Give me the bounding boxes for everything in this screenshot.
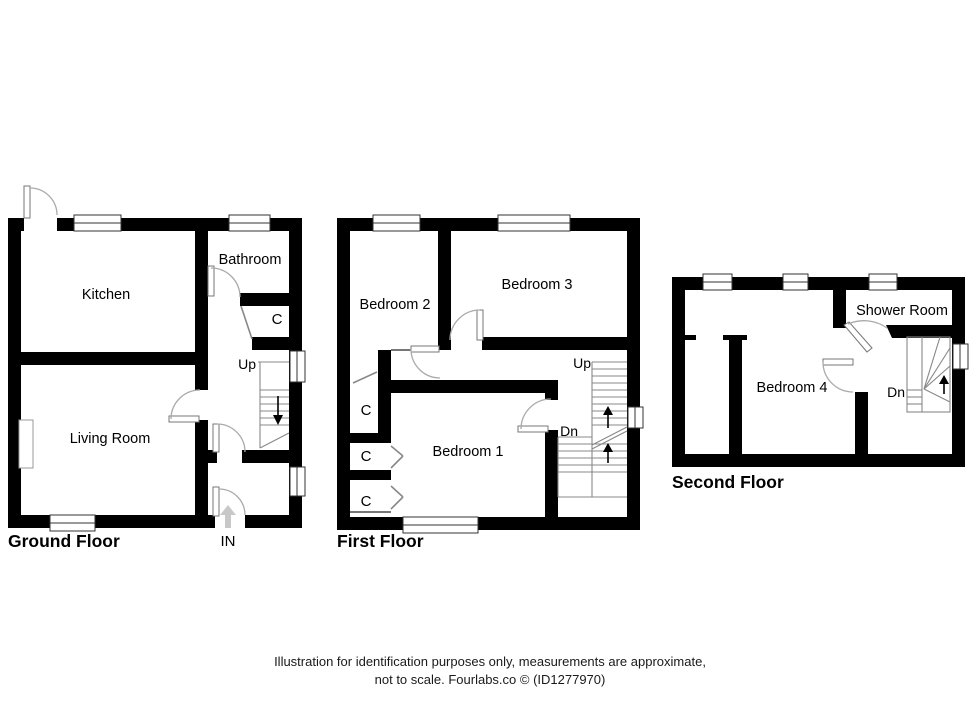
- wall-segment: [242, 450, 302, 463]
- first-floor-windows: [373, 215, 643, 533]
- wall-segment: [337, 433, 391, 443]
- window: [290, 351, 305, 382]
- ground-floor-stairs: [258, 362, 289, 448]
- wall-segment: [672, 454, 965, 467]
- bedroom2-door: [411, 346, 440, 378]
- arrow-up-icon: [220, 505, 236, 528]
- ground-floor-doors: [24, 186, 252, 516]
- room-label-kitchen: Kitchen: [82, 287, 130, 303]
- room-label-bedroom4: Bedroom 4: [757, 380, 828, 396]
- window: [50, 515, 95, 531]
- closet-door: [241, 306, 252, 339]
- window: [290, 467, 305, 496]
- wall-segment: [478, 517, 640, 530]
- closet3-door: [391, 486, 403, 509]
- room-label-bathroom: Bathroom: [219, 252, 282, 268]
- floor-title-second: Second Floor: [672, 472, 784, 492]
- first-floor-plan: Bedroom 2 Bedroom 3 Bedroom 1 C C C Up D…: [337, 215, 643, 551]
- window: [703, 274, 732, 290]
- wall-segment: [391, 380, 558, 393]
- wall-segment: [195, 463, 208, 515]
- window: [373, 215, 420, 231]
- disclaimer-line-2: not to scale. Fourlabs.co © (ID1277970): [375, 672, 606, 687]
- wall-segment: [833, 290, 846, 328]
- wall-segment: [8, 218, 21, 528]
- wall-segment: [337, 218, 350, 530]
- window: [498, 215, 570, 231]
- wall-segment: [195, 231, 208, 352]
- bedroom3-door: [450, 310, 483, 340]
- wall-segment: [545, 430, 558, 517]
- wall-segment: [245, 515, 302, 528]
- wall-segment: [8, 515, 50, 528]
- room-label-closet2: C: [361, 448, 372, 465]
- wall-segment: [723, 335, 747, 340]
- entrance-arrow: [220, 505, 236, 528]
- wall-segment: [952, 277, 965, 467]
- wall-segment: [121, 218, 229, 231]
- entry-door: [24, 186, 57, 218]
- wall-segment: [438, 231, 451, 350]
- wall-segment: [337, 470, 391, 480]
- wall-segment: [685, 335, 696, 340]
- entrance-label-in: IN: [221, 533, 236, 550]
- ground-floor-plan: Kitchen Bathroom C Up Living Room IN Gro…: [8, 186, 305, 551]
- wall-segment: [886, 325, 965, 338]
- room-label-shower-room: Shower Room: [856, 303, 948, 319]
- closet2-door: [391, 446, 403, 468]
- arrow-down-icon: [273, 415, 283, 425]
- wall-segment: [337, 517, 403, 530]
- chimney-breast: [19, 420, 33, 468]
- wall-segment: [95, 515, 215, 528]
- hall-door: [213, 424, 245, 452]
- floor-title-ground: Ground Floor: [8, 531, 120, 551]
- living-room-door: [169, 390, 200, 422]
- room-label-bedroom1: Bedroom 1: [433, 444, 504, 460]
- room-label-closet: C: [272, 311, 283, 328]
- window: [783, 274, 808, 290]
- floorplan-page: Kitchen Bathroom C Up Living Room IN Gro…: [0, 0, 980, 708]
- wall-segment: [378, 350, 391, 443]
- wall-segment: [240, 293, 302, 306]
- room-label-bedroom3: Bedroom 3: [502, 277, 573, 293]
- second-floor-doors: [823, 321, 887, 392]
- window: [953, 344, 968, 369]
- wall-segment: [420, 218, 498, 231]
- floor-title-first: First Floor: [337, 531, 424, 551]
- wall-segment: [482, 337, 627, 350]
- shower-room-door: [844, 321, 887, 352]
- wall-segment: [627, 218, 640, 530]
- wall-segment: [252, 337, 302, 350]
- room-label-closet3: C: [361, 493, 372, 510]
- wall-segment: [8, 352, 208, 365]
- wall-segment: [808, 277, 869, 290]
- bedroom4-door: [823, 359, 853, 392]
- stair-label-down: Dn: [560, 423, 578, 439]
- stair-label-down: Dn: [887, 384, 905, 400]
- window: [74, 215, 121, 231]
- wall-segment: [195, 365, 208, 390]
- wall-segment: [729, 337, 742, 454]
- disclaimer-line-1: Illustration for identification purposes…: [274, 654, 706, 669]
- wall-segment: [672, 277, 685, 467]
- stair-label-up: Up: [573, 355, 591, 371]
- wall-segment: [57, 218, 74, 231]
- wall-segment: [732, 277, 783, 290]
- second-floor-stairs: [907, 337, 950, 412]
- arrow-up-icon: [939, 375, 949, 384]
- bathroom-door: [208, 266, 240, 297]
- footer-disclaimer: Illustration for identification purposes…: [274, 654, 706, 687]
- room-label-closet1: C: [361, 402, 372, 419]
- closet1-door: [353, 372, 377, 383]
- room-label-bedroom2: Bedroom 2: [360, 297, 431, 313]
- window: [229, 215, 270, 231]
- first-floor-walls: [337, 218, 640, 530]
- wall-segment: [195, 420, 208, 450]
- second-floor-plan: Bedroom 4 Shower Room Dn Second Floor: [672, 274, 968, 492]
- stair-label-up: Up: [238, 356, 256, 372]
- bedroom1-door: [518, 399, 551, 432]
- window: [869, 274, 897, 290]
- window: [628, 407, 643, 428]
- floorplan-canvas: Kitchen Bathroom C Up Living Room IN Gro…: [0, 0, 980, 708]
- room-label-living-room: Living Room: [70, 431, 151, 447]
- wall-segment: [855, 392, 868, 454]
